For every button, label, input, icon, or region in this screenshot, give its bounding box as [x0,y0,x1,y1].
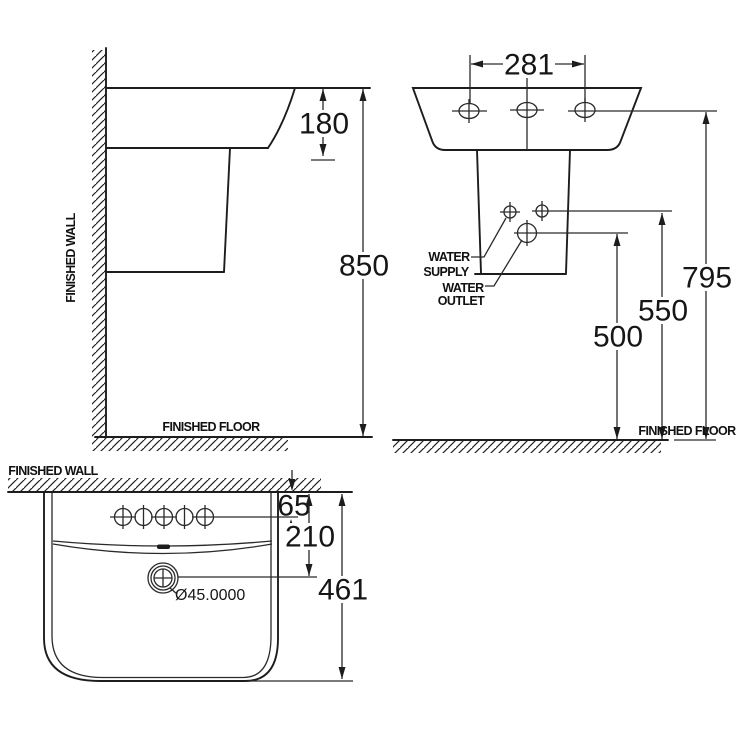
water-outlet-hole [514,220,628,246]
water-outlet-leader [485,240,522,286]
plan-wall-hatch [8,478,321,492]
side-floor-hatch [92,437,288,451]
side-floor-label: FINISHED FLOOR [162,420,260,434]
side-basin-front-curve [268,88,295,148]
water-supply-label-1: WATER [428,250,470,264]
dim-basin-depth: 180 [298,89,350,160]
side-pedestal-front [224,148,230,272]
drain-diameter-label: Ø45.0000 [175,587,245,604]
overflow-slot [157,545,170,550]
dim-rim-height-side: 850 [338,89,390,436]
water-supply-holes [500,201,672,222]
plan-wall-label: FINISHED WALL [8,464,98,478]
dim-text-210: 210 [285,521,335,554]
plan-view: Ø45.0000 65 210 461 FINISHED WALL [8,464,369,681]
dim-text-281: 281 [504,49,554,82]
front-floor-label: FINISHED FLOOR [638,424,736,438]
front-pedestal-left [477,150,481,273]
basin-dimension-drawing: 180 850 FINISHED WALL FINISHED FLOOR [0,0,740,740]
plan-basin-inner [52,493,271,678]
dim-supply-height: 550 [637,213,688,439]
dim-text-850: 850 [339,250,389,283]
water-supply-leader [471,218,506,257]
water-outlet-label-2: OUTLET [438,294,485,308]
dim-text-500: 500 [593,321,643,354]
dim-text-180: 180 [299,108,349,141]
plan-faucet-holes [110,505,298,529]
side-wall-hatch [92,50,106,437]
dim-outlet-height: 500 [592,234,643,439]
dim-text-795: 795 [682,262,732,295]
dim-rim-height-front: 795 [681,112,732,439]
side-wall-label: FINISHED WALL [64,212,78,302]
front-view: 281 795 550 500 WATER SU [393,49,736,454]
water-supply-label-2: SUPPLY [423,265,470,279]
dim-text-461: 461 [318,574,368,607]
technical-drawing-page: 180 850 FINISHED WALL FINISHED FLOOR [0,0,740,740]
dim-text-550: 550 [638,295,688,328]
side-view: 180 850 FINISHED WALL FINISHED FLOOR [64,48,390,451]
water-outlet-label-1: WATER [442,281,484,295]
front-floor-hatch [393,440,661,453]
